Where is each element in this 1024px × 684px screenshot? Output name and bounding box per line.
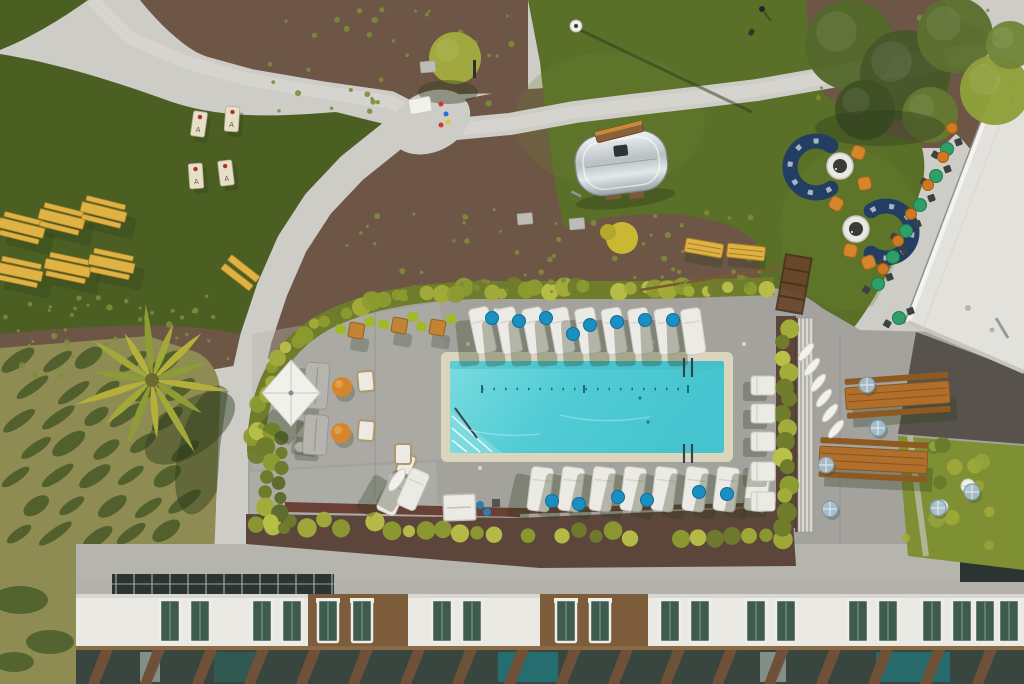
seedling: [193, 308, 199, 314]
wood-table: [391, 317, 408, 334]
bed-grass: [451, 524, 469, 542]
hedge-puff: [722, 282, 733, 293]
deck-drain: [478, 466, 482, 470]
bed-grass: [571, 522, 587, 538]
play-equipment: [444, 112, 449, 117]
seedling: [205, 295, 208, 298]
blue-pillow: [546, 495, 559, 508]
seedling: [48, 309, 51, 312]
grass-blob-2: [26, 630, 74, 654]
strip-plant: [773, 518, 791, 536]
seedling: [561, 278, 566, 283]
seedling: [28, 344, 31, 347]
umbrella-pole: [289, 391, 294, 396]
blue-pillow: [612, 491, 625, 504]
seedling: [70, 313, 74, 317]
paver-stone: [517, 213, 533, 225]
seedling: [633, 276, 636, 279]
pouf-highlight: [334, 426, 342, 434]
seedling: [171, 309, 175, 313]
moss-plant: [933, 476, 946, 489]
chaise-lounger: [751, 404, 775, 423]
moss-plant: [947, 459, 963, 475]
seedling: [506, 15, 509, 18]
seedling: [661, 255, 667, 261]
canopy-highlight: [816, 11, 857, 52]
seedling: [671, 267, 675, 271]
seedling: [73, 307, 77, 311]
seedling: [17, 329, 20, 332]
lounge-armchair: [357, 371, 375, 392]
blue-pillow: [721, 488, 734, 501]
seedling: [499, 230, 502, 233]
play-equipment: [439, 123, 444, 128]
light-pole: [473, 60, 476, 78]
seedling: [31, 340, 34, 343]
cafe-table: [900, 225, 913, 238]
hedge-puff: [759, 281, 775, 297]
seedling: [271, 80, 275, 84]
shrub: [272, 476, 286, 490]
seedling: [64, 339, 70, 345]
seedling: [487, 54, 491, 58]
hedge-puff: [707, 281, 723, 297]
bed-grass: [316, 512, 332, 528]
moss-plant: [984, 540, 994, 550]
hedge-puff: [295, 326, 313, 344]
scene-svg: AAAA: [0, 0, 1024, 684]
hedge-puff: [624, 282, 637, 295]
water-dot-1: [638, 396, 641, 399]
chaise-lounger: [751, 492, 775, 511]
bed-grass: [521, 528, 536, 543]
hedge-puff: [526, 279, 542, 295]
seedling: [344, 26, 350, 32]
yellow-bush: [600, 224, 616, 240]
blue-pillow: [486, 312, 499, 325]
bed-grass: [417, 521, 436, 540]
fire-pit: [849, 222, 863, 236]
orange-umbrella: [893, 236, 904, 247]
lime-chair: [407, 312, 418, 323]
wood-table: [348, 322, 365, 339]
hedge-puff: [376, 292, 392, 308]
seedling: [72, 355, 75, 358]
seedling: [359, 231, 363, 235]
strip-plant: [775, 335, 790, 350]
deck-box: [492, 499, 500, 507]
seedling: [366, 225, 369, 228]
bed-grass: [741, 528, 757, 544]
blue-pillow: [573, 498, 586, 511]
seedling: [345, 244, 348, 247]
seedling: [485, 280, 490, 285]
wood-table: [429, 319, 446, 336]
seedling: [681, 250, 684, 253]
orange-umbrella: [938, 152, 949, 163]
orange-pouf: [332, 377, 352, 397]
bed-grass: [622, 530, 638, 546]
hedge-puff: [420, 286, 435, 301]
bed-grass: [759, 529, 772, 542]
seedling: [405, 53, 409, 57]
hedge-puff: [576, 280, 589, 293]
cafe-table: [872, 278, 885, 291]
seedling: [139, 307, 142, 310]
seedling: [412, 212, 415, 215]
seedling: [96, 295, 101, 300]
orange-umbrella: [906, 209, 917, 220]
deck-drain: [742, 342, 746, 346]
seedling: [268, 62, 273, 67]
cornhole-letter: A: [229, 121, 235, 129]
hedge-puff: [318, 316, 330, 328]
moss-plant: [984, 507, 994, 517]
paver-stone: [420, 61, 436, 73]
roof-vent-1: [965, 305, 971, 311]
blue-pillow: [639, 314, 652, 327]
seedling: [653, 214, 657, 218]
lounge-armchair: [357, 420, 375, 441]
seedling: [373, 242, 376, 245]
hedge-puff: [280, 342, 291, 353]
canopy-highlight: [927, 7, 961, 41]
seedling: [226, 357, 229, 360]
hedge-puff: [454, 278, 473, 297]
seedling: [49, 305, 52, 308]
shrub: [263, 514, 279, 530]
seedling: [295, 90, 301, 96]
hedge-puff: [309, 318, 319, 328]
seedling: [374, 213, 380, 219]
seedling: [473, 284, 479, 290]
canopy-highlight: [969, 64, 1001, 96]
seedling: [665, 232, 671, 238]
bed-grass: [486, 526, 502, 542]
orange-umbrella: [878, 264, 889, 275]
seedling: [105, 342, 109, 346]
moss-plant: [974, 454, 990, 470]
palm-crown: [145, 373, 159, 387]
seedling: [748, 215, 754, 221]
hedge-puff: [683, 286, 694, 297]
bed-grass: [706, 530, 724, 548]
play-equipment: [439, 102, 444, 107]
cornhole-letter: A: [194, 178, 200, 186]
seedling: [485, 100, 491, 106]
seedling: [114, 337, 118, 341]
seedling: [166, 321, 172, 327]
seedling: [138, 317, 142, 321]
moss-plant: [902, 534, 911, 543]
seedling: [508, 41, 514, 47]
aerial-photo-canvas: AAAA: [0, 0, 1024, 684]
swimming-pool: [441, 352, 733, 463]
seedling: [739, 275, 744, 280]
shrub: [274, 461, 288, 475]
seedling: [462, 214, 468, 220]
lime-chair: [445, 314, 456, 325]
speck: [835, 168, 837, 170]
roof-vent: [613, 144, 628, 157]
seedling: [207, 339, 210, 342]
seedling: [367, 32, 372, 37]
seedling: [211, 315, 215, 319]
seedling: [3, 315, 8, 320]
blue-pillow: [667, 314, 680, 327]
orange-umbrella: [947, 123, 958, 134]
seedling: [677, 270, 681, 274]
bed-grass: [332, 519, 350, 537]
seedling: [452, 239, 455, 242]
blue-bin: [476, 501, 484, 509]
chaise-lounger: [751, 432, 775, 451]
seedling: [28, 302, 33, 307]
orange-pouf: [331, 423, 351, 443]
strip-plant: [777, 488, 792, 503]
seedling: [367, 108, 372, 113]
seedling: [372, 17, 378, 23]
skylight-grid: [112, 574, 334, 594]
seedling: [330, 107, 333, 110]
seedling: [124, 299, 129, 304]
shade-canopy: [408, 96, 432, 115]
blue-pillow: [611, 316, 624, 329]
seedling: [515, 250, 520, 255]
bed-grass: [690, 529, 707, 546]
seedling: [464, 238, 470, 244]
seedling: [370, 97, 373, 100]
play-equipment: [446, 120, 451, 125]
fire-pit: [833, 159, 847, 173]
seedling: [379, 7, 384, 12]
seedling: [556, 237, 561, 242]
seedling: [427, 10, 430, 13]
seedling: [180, 316, 184, 320]
seedling: [612, 256, 618, 262]
seedling: [758, 271, 761, 274]
blue-pillow: [641, 494, 654, 507]
seedling: [493, 208, 496, 211]
shrub: [274, 492, 286, 504]
seedling: [591, 220, 597, 226]
seedling: [505, 289, 508, 292]
seedling: [524, 274, 527, 277]
seedling: [33, 372, 38, 377]
chaise-lounger: [751, 462, 775, 481]
cafe-table: [887, 251, 900, 264]
bed-grass: [297, 518, 316, 537]
seedling: [87, 304, 90, 307]
seedling: [76, 295, 81, 300]
seedling: [312, 33, 317, 38]
pouf-highlight: [335, 380, 343, 388]
seedling: [728, 216, 732, 220]
orange-umbrella: [923, 180, 934, 191]
seedling: [58, 373, 63, 378]
paver-stone: [569, 218, 585, 230]
bed-grass: [554, 528, 569, 543]
cafe-table: [914, 199, 927, 212]
seedling: [459, 282, 464, 287]
seedling: [744, 283, 749, 288]
canopy-highlight: [436, 39, 459, 62]
seedling: [683, 279, 688, 284]
seedling: [538, 269, 544, 275]
seedling: [680, 223, 684, 227]
chaise-lounger: [751, 376, 775, 395]
canopy-highlight: [843, 88, 870, 115]
hedge-puff: [341, 308, 353, 320]
orange-chair: [843, 243, 858, 258]
bed-grass: [672, 530, 690, 548]
seedling: [642, 242, 646, 246]
blue-bin: [483, 508, 491, 516]
shrub: [258, 485, 271, 498]
seedling: [547, 257, 552, 262]
canopy-highlight: [871, 41, 912, 82]
bed-grass: [604, 521, 623, 540]
bed-grass: [248, 516, 264, 532]
blue-pillow: [513, 315, 526, 328]
seedling: [986, 9, 989, 12]
seedling: [364, 91, 370, 97]
blue-pillow: [693, 486, 706, 499]
seedling: [679, 283, 683, 287]
seedling: [284, 20, 287, 23]
seedling: [414, 9, 417, 12]
shrub: [278, 522, 290, 534]
seedling: [649, 234, 652, 237]
strip-plant: [781, 391, 797, 407]
blue-pillow: [540, 312, 553, 325]
seedling: [496, 54, 499, 57]
roof-vent-2: [990, 328, 995, 333]
bed-grass: [434, 520, 452, 538]
lamp-pole: [574, 24, 578, 28]
person: [759, 6, 765, 12]
seedling: [64, 328, 68, 332]
seedling: [357, 8, 362, 13]
blue-pillow: [584, 319, 597, 332]
seedling: [462, 221, 466, 225]
seedling: [349, 88, 353, 92]
cabinet-seam: [447, 507, 471, 508]
seedling: [550, 290, 553, 293]
seedling: [306, 68, 310, 72]
seedling: [334, 17, 340, 23]
cafe-table: [893, 312, 906, 325]
canopy-highlight: [992, 27, 1014, 49]
seedling: [19, 362, 25, 368]
lounge-armchair: [395, 444, 411, 464]
seedling: [731, 269, 736, 274]
seedling: [277, 109, 280, 112]
bed-grass: [470, 526, 484, 540]
speck: [851, 231, 853, 233]
seedling: [392, 39, 395, 42]
seedling: [376, 100, 380, 104]
seedling: [106, 304, 112, 310]
seedling: [425, 13, 429, 17]
seedling: [379, 77, 384, 82]
seedling: [552, 254, 556, 258]
seedling: [704, 210, 709, 215]
seedling: [175, 336, 178, 339]
bed-grass: [723, 527, 741, 545]
blue-pillow: [567, 328, 580, 341]
seedling: [816, 95, 821, 100]
bed-grass: [383, 521, 402, 540]
seedling: [51, 333, 57, 339]
lime-chair: [364, 317, 375, 328]
facade-windows: [158, 598, 1021, 642]
seedling: [820, 86, 823, 89]
seedling: [548, 279, 554, 285]
seedling: [554, 222, 557, 225]
bed-grass: [589, 530, 602, 543]
seedling: [185, 333, 188, 336]
seedling: [150, 311, 154, 315]
water-dot-2: [646, 420, 649, 423]
seedling: [420, 271, 424, 275]
shrub: [260, 470, 274, 484]
bed-grass: [403, 525, 415, 537]
seedling: [399, 268, 405, 274]
seedling: [661, 275, 664, 278]
orange-chair: [857, 176, 872, 191]
strip-plant: [780, 459, 795, 474]
moss-plant: [935, 437, 951, 453]
